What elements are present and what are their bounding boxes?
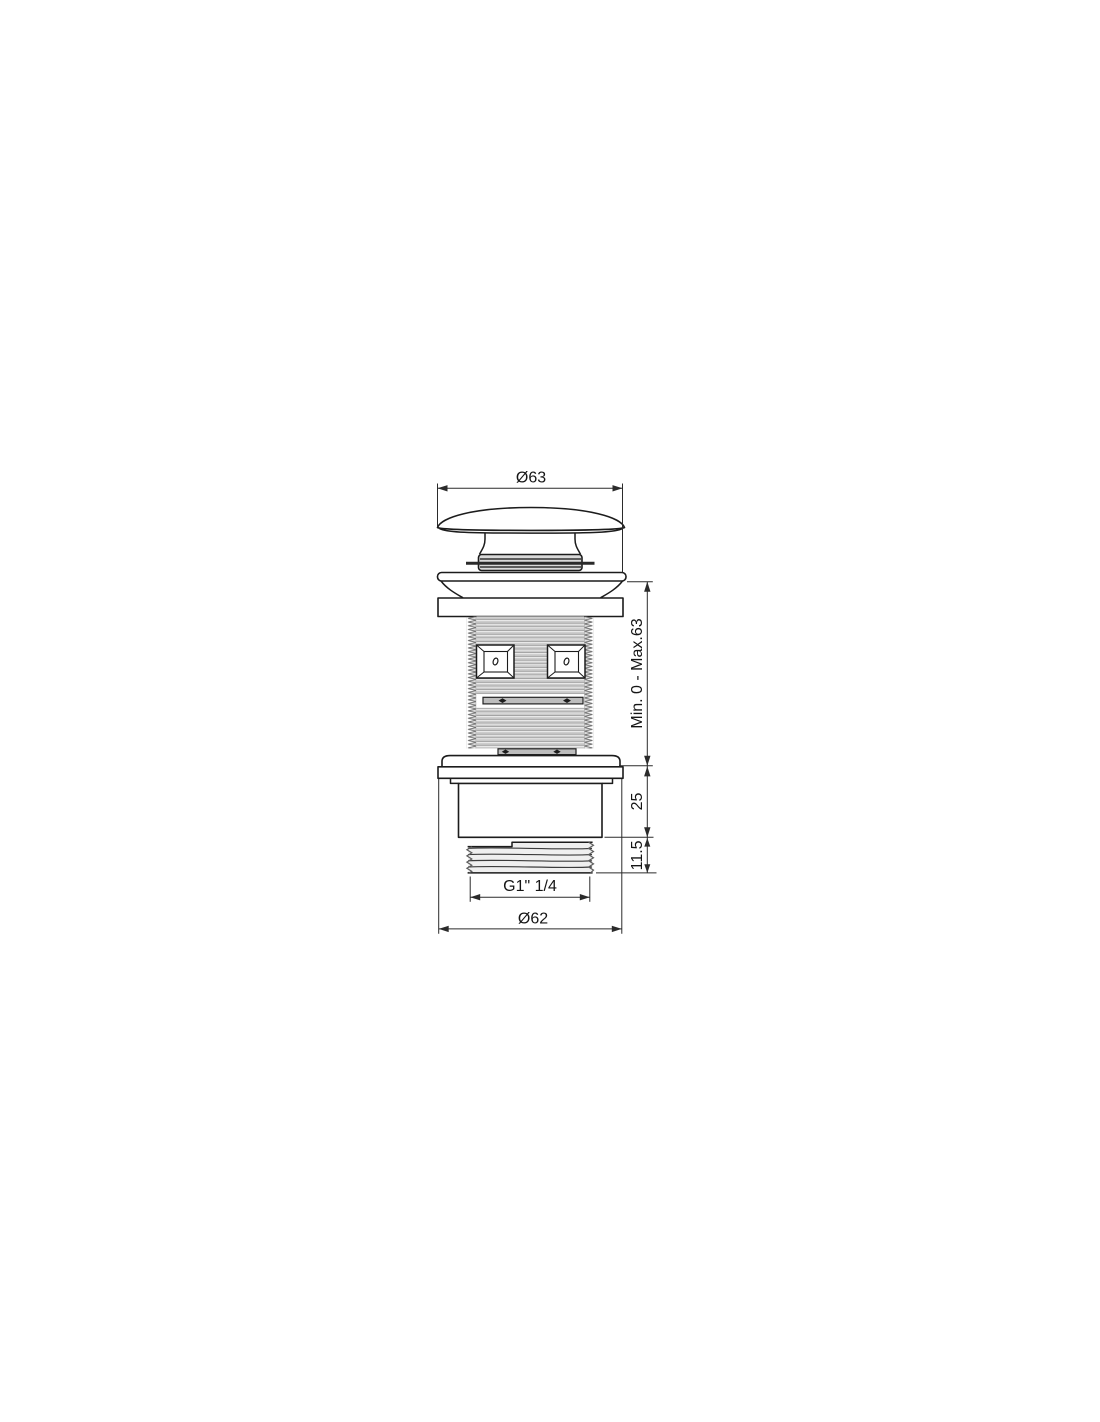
thread-edge-left	[467, 617, 477, 749]
dim-label-flange-diameter: Ø62	[518, 910, 548, 927]
mounting-plate	[438, 598, 623, 617]
stem-left-edge	[480, 533, 486, 555]
dim-label-outlet-thread-height: 11.5	[629, 840, 646, 870]
arrow-left	[438, 485, 448, 491]
push-cap	[438, 508, 625, 534]
cap-stem	[480, 533, 581, 555]
arrow-up	[644, 582, 650, 592]
flange-trumpet-right	[601, 581, 623, 598]
arrow-down	[644, 756, 650, 766]
arrow-right	[613, 485, 623, 491]
dim-label-body-height: 25	[629, 793, 646, 811]
dim-label-cap-diameter: Ø63	[516, 470, 546, 487]
threaded-tube	[467, 617, 594, 755]
seal-bar	[498, 749, 576, 755]
arrow-left	[470, 894, 480, 900]
thread-ribs	[476, 617, 584, 749]
window-inner	[555, 652, 579, 673]
cap-dome-outline	[438, 508, 625, 531]
locknut-flange	[438, 756, 623, 784]
arrow-up	[644, 766, 650, 776]
locknut-plate	[438, 767, 623, 779]
locknut-crown	[442, 756, 620, 767]
thread-edge-right	[584, 617, 594, 749]
arrow-right	[580, 894, 590, 900]
outlet-thread	[467, 842, 594, 873]
arrow-right	[612, 926, 622, 932]
dim-label-adjust-range: Min. 0 - Max.63	[629, 618, 646, 728]
plug-seal-lower	[498, 749, 576, 755]
seal-bellows	[466, 555, 595, 571]
overflow-window-left	[477, 645, 515, 678]
stem-right-edge	[575, 533, 581, 555]
top-flange	[438, 573, 627, 598]
technical-drawing: Ø63 Min. 0 - Max.63 25 11.5 G1" 1/4	[0, 0, 1100, 1422]
drawing-canvas: Ø63 Min. 0 - Max.63 25 11.5 G1" 1/4	[0, 0, 1100, 1422]
dim-label-outlet-thread-size: G1" 1/4	[503, 878, 557, 895]
overflow-window-right	[548, 645, 586, 678]
flange-trumpet-left	[441, 581, 463, 598]
dimension-outlet-thread-size: G1" 1/4	[470, 877, 590, 902]
flange-band	[438, 573, 627, 582]
window-inner	[484, 652, 508, 673]
plug-seal-upper	[476, 694, 584, 708]
arrow-down	[644, 827, 650, 837]
valve-body	[459, 783, 603, 837]
arrow-left	[439, 926, 449, 932]
